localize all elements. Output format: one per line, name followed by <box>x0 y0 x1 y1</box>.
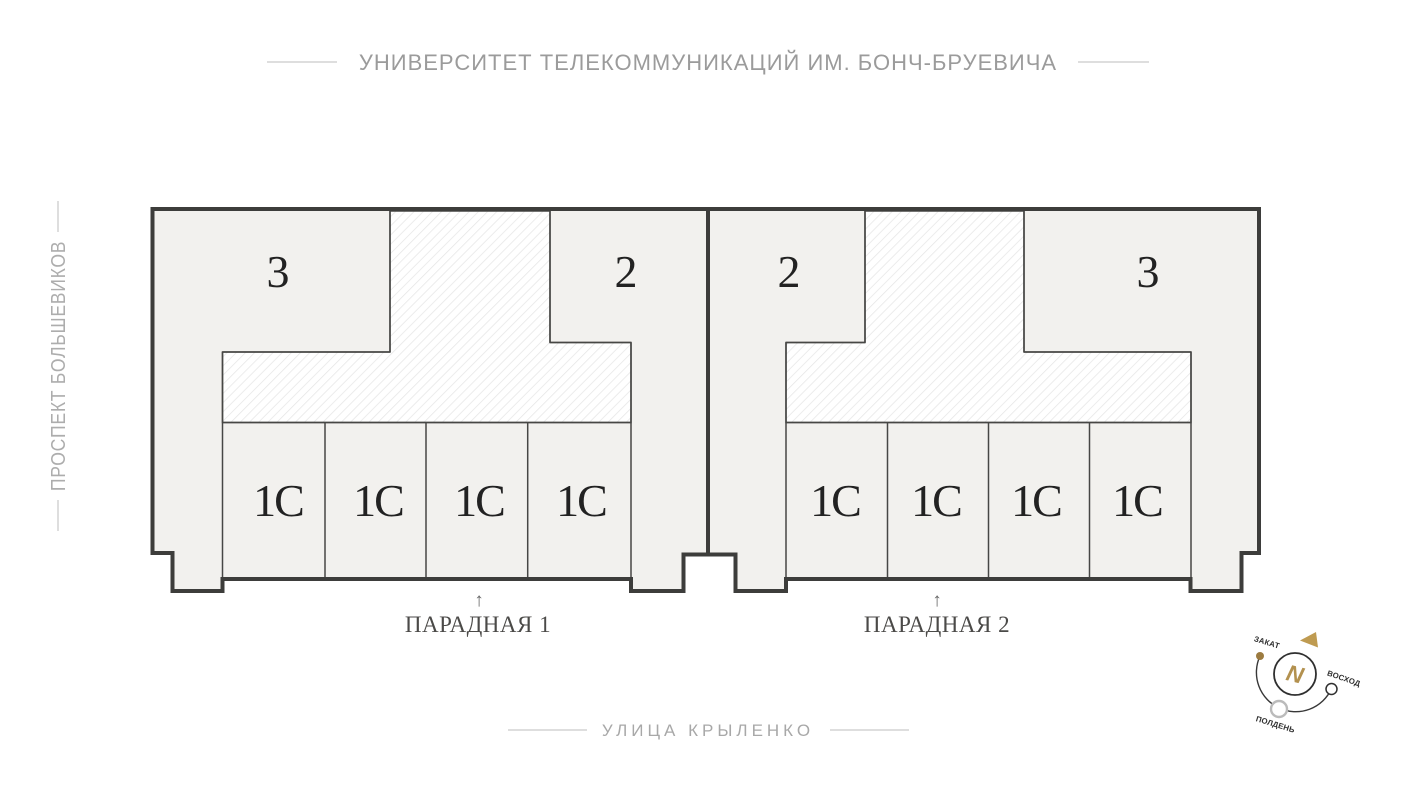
svg-text:УЛИЦА КРЫЛЕНКО: УЛИЦА КРЫЛЕНКО <box>602 721 814 740</box>
svg-text:↑: ↑ <box>474 590 484 611</box>
svg-text:3: 3 <box>1137 246 1160 297</box>
svg-text:2: 2 <box>778 246 801 297</box>
svg-text:1С: 1С <box>454 475 504 526</box>
svg-text:↑: ↑ <box>932 590 942 611</box>
svg-text:2: 2 <box>615 246 638 297</box>
svg-text:ПАРАДНАЯ 1: ПАРАДНАЯ 1 <box>405 612 551 637</box>
svg-text:1С: 1С <box>1011 475 1061 526</box>
svg-text:УНИВЕРСИТЕТ ТЕЛЕКОММУНИКАЦИЙ И: УНИВЕРСИТЕТ ТЕЛЕКОММУНИКАЦИЙ ИМ. БОНЧ-БР… <box>359 50 1057 75</box>
svg-text:1С: 1С <box>253 475 303 526</box>
svg-text:1С: 1С <box>353 475 403 526</box>
svg-text:ПАРАДНАЯ 2: ПАРАДНАЯ 2 <box>864 612 1010 637</box>
svg-text:1С: 1С <box>556 475 606 526</box>
svg-text:1С: 1С <box>911 475 961 526</box>
svg-text:ПРОСПЕКТ БОЛЬШЕВИКОВ: ПРОСПЕКТ БОЛЬШЕВИКОВ <box>47 241 69 491</box>
svg-text:1С: 1С <box>1112 475 1162 526</box>
svg-text:3: 3 <box>267 246 290 297</box>
svg-text:1С: 1С <box>810 475 860 526</box>
